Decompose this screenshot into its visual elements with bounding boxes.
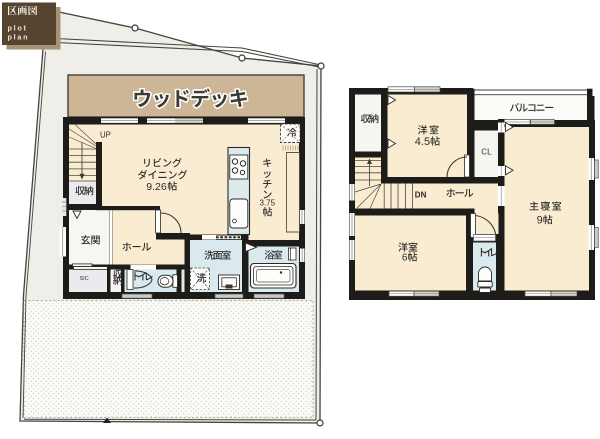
svg-text:DN: DN <box>415 191 427 200</box>
svg-text:3.75: 3.75 <box>260 199 276 208</box>
svg-text:UP: UP <box>100 131 111 140</box>
svg-text:4.5: 4.5 <box>415 136 430 148</box>
svg-text:CL: CL <box>481 148 492 157</box>
svg-text:plot: plot <box>8 23 28 32</box>
svg-text:SIC: SIC <box>80 276 89 282</box>
svg-text:9: 9 <box>537 214 543 226</box>
svg-text:9.26: 9.26 <box>146 181 167 193</box>
svg-text:6: 6 <box>402 253 408 264</box>
svg-text:plan: plan <box>8 33 30 42</box>
